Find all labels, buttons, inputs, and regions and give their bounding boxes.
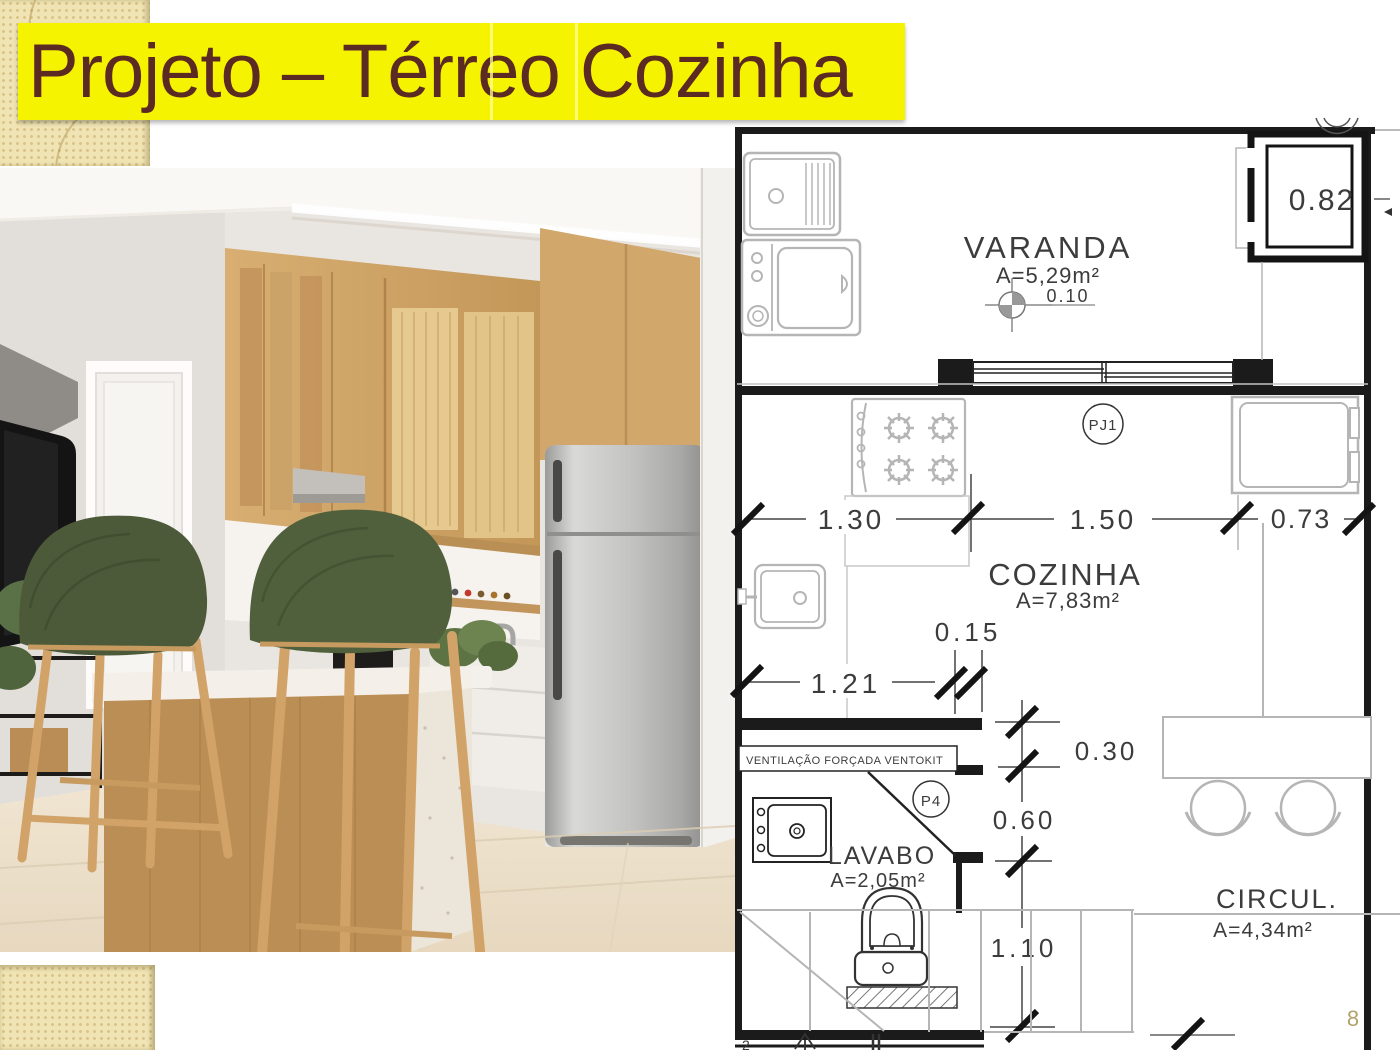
arc-detail bbox=[1316, 118, 1358, 133]
ventilation-note-text: VENTILAÇÃO FORÇADA VENTOKIT bbox=[746, 754, 943, 767]
fridge bbox=[545, 445, 705, 847]
decorative-pattern-bottom-left bbox=[0, 965, 155, 1050]
highlight-seam bbox=[490, 23, 493, 120]
dim-015: 0.15 bbox=[935, 617, 1002, 647]
freezer-handle bbox=[553, 460, 562, 522]
room-cozinha: COZINHA bbox=[988, 557, 1142, 592]
dim-150: 1.50 bbox=[1070, 504, 1137, 535]
upper-cabinets bbox=[225, 248, 540, 556]
page-number: 8 bbox=[1347, 1006, 1359, 1031]
washing-machine bbox=[742, 240, 860, 335]
wall-corner bbox=[700, 168, 735, 952]
dim-073: 0.73 bbox=[1271, 504, 1332, 534]
plan-walls bbox=[735, 127, 1375, 1050]
dim-010: 0.10 bbox=[1046, 286, 1089, 306]
room-circul: CIRCUL. bbox=[1216, 884, 1338, 914]
room-cozinha-area: A=7,83m² bbox=[1016, 588, 1120, 613]
plan-background bbox=[742, 125, 1400, 1050]
dim-110: 1.10 bbox=[991, 933, 1058, 963]
plan-fridge bbox=[1232, 397, 1359, 550]
dim-082: 0.82 bbox=[1289, 184, 1355, 217]
ventilation-box: VENTILAÇÃO FORÇADA VENTOKIT bbox=[739, 746, 957, 771]
bar-counter bbox=[1163, 523, 1371, 778]
dimension-row-top: 1.30 1.50 0.73 bbox=[733, 474, 1374, 552]
stairs bbox=[737, 910, 1400, 1035]
dim-060: 0.60 bbox=[993, 805, 1056, 835]
slide: PJ1 1.30 1.50 0.73 VARANDA A=5,29m² 0.10… bbox=[0, 0, 1400, 1050]
dimension-row-121: 0.15 1.21 bbox=[732, 617, 1001, 714]
dim-030: 0.30 bbox=[1075, 736, 1138, 766]
column-detail bbox=[1236, 134, 1392, 360]
stair-mark-text: 2 bbox=[742, 1037, 750, 1050]
room-circul-area: A=4,34m² bbox=[1213, 919, 1313, 942]
stair-symbols: 2 bbox=[742, 1034, 879, 1050]
pj1-label: PJ1 bbox=[1083, 404, 1123, 444]
dim-130: 1.30 bbox=[818, 504, 885, 535]
window-label-text: PJ1 bbox=[1089, 417, 1118, 434]
window-pj1 bbox=[973, 362, 1233, 383]
hatch-strip bbox=[847, 987, 957, 1008]
plan-chairs bbox=[1186, 781, 1340, 835]
room-lavabo: LAVABO bbox=[828, 842, 936, 870]
room-varanda: VARANDA bbox=[964, 230, 1133, 265]
varanda-sink bbox=[744, 153, 840, 235]
cozinha-sink bbox=[738, 565, 825, 628]
survey-marker bbox=[985, 278, 1095, 332]
fridge-handle bbox=[553, 550, 562, 700]
slide-title: Projeto – Térreo Cozinha bbox=[18, 23, 852, 120]
room-varanda-area: A=5,29m² bbox=[996, 263, 1100, 288]
lavabo-sink bbox=[753, 798, 831, 862]
title-highlight-bar: Projeto – Térreo Cozinha bbox=[18, 23, 905, 120]
door-p4: P4 bbox=[868, 772, 956, 856]
stove bbox=[845, 399, 969, 718]
toilet bbox=[855, 888, 927, 985]
highlight-seam bbox=[575, 23, 578, 120]
room-lavabo-area: A=2,05m² bbox=[830, 870, 925, 892]
door-label-text: P4 bbox=[921, 793, 941, 810]
dimension-chain-vertical: 0.30 0.60 1.10 bbox=[980, 700, 1137, 1041]
dim-tick bbox=[1173, 1019, 1203, 1049]
dim-121: 1.21 bbox=[811, 668, 882, 699]
kitchen-photo bbox=[0, 168, 735, 952]
